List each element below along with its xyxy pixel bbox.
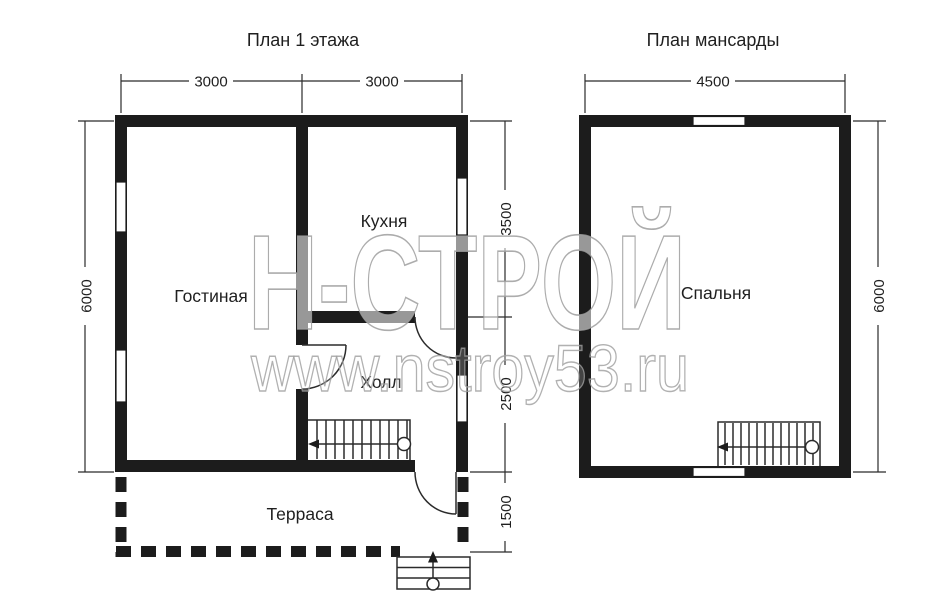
watermark: Н-СТРОЙ www.nstroy53.ru (248, 206, 689, 405)
attic-room-labels: Спальня (681, 283, 751, 303)
dim-label: 4500 (696, 74, 729, 91)
steps-start-marker (427, 578, 439, 590)
stairs-treads (317, 420, 407, 459)
dim-lines-top (121, 74, 462, 113)
floor1-title: План 1 этажа (247, 30, 360, 50)
wall-top (115, 115, 468, 127)
wall-bottom (115, 460, 415, 472)
attic-title: План мансарды (647, 30, 780, 50)
floor1-stairs (308, 420, 411, 460)
stairs-start-marker (806, 441, 819, 454)
dim-label: 3000 (365, 74, 398, 91)
window (116, 350, 126, 402)
floorplan-image: План 1 этажа (0, 0, 950, 610)
room-label-living: Гостиная (174, 286, 247, 306)
stairs-start-marker (398, 438, 411, 451)
entrance-steps (397, 551, 470, 590)
room-label-bedroom: Спальня (681, 283, 751, 303)
dim-label: 6000 (871, 279, 888, 312)
wall-left (115, 115, 127, 472)
door-arc (415, 472, 456, 514)
window (693, 117, 745, 126)
watermark-site-text: www.nstroy53.ru (250, 331, 689, 405)
window (116, 182, 126, 232)
dim-label: 3000 (194, 74, 227, 91)
wall-right (839, 115, 851, 478)
stairs-arrowhead (308, 440, 319, 449)
stairs-outline (308, 420, 410, 460)
floorplan-svg: План 1 этажа (0, 0, 950, 610)
dim-label: 1500 (498, 495, 515, 528)
window (693, 468, 745, 477)
stairs-treads (725, 423, 813, 465)
room-label-terrace: Терраса (266, 504, 333, 524)
attic-stairs (717, 422, 820, 466)
dim-label: 6000 (79, 279, 96, 312)
